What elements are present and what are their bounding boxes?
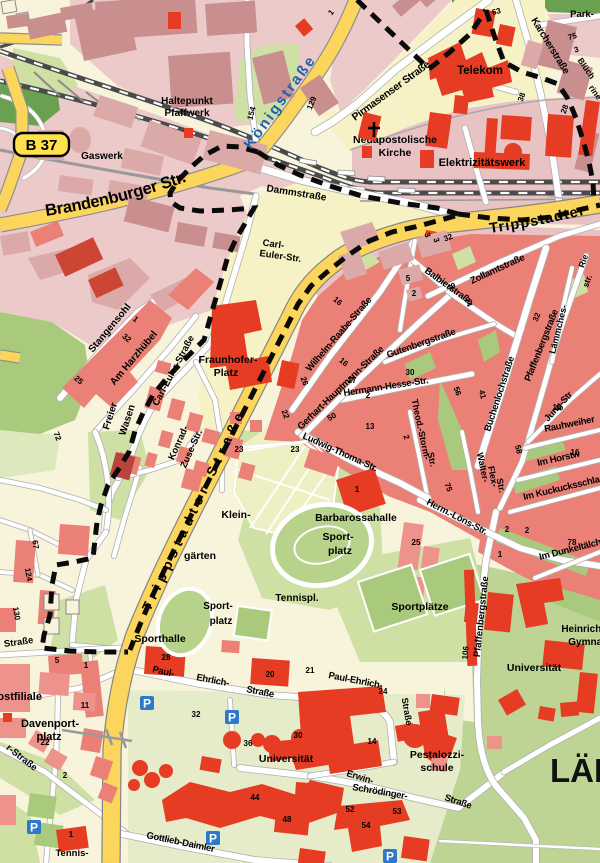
svg-text:24: 24 bbox=[379, 687, 388, 696]
svg-text:1: 1 bbox=[69, 830, 74, 839]
svg-text:schule: schule bbox=[420, 762, 453, 774]
svg-text:Elektrizitätswerk: Elektrizitätswerk bbox=[439, 157, 527, 169]
svg-text:1: 1 bbox=[84, 661, 89, 670]
svg-text:5: 5 bbox=[55, 656, 60, 665]
svg-text:Tennis-: Tennis- bbox=[55, 848, 88, 859]
svg-text:106: 106 bbox=[460, 645, 470, 660]
svg-text:Sport-: Sport- bbox=[323, 531, 354, 543]
svg-text:P: P bbox=[228, 711, 236, 725]
svg-text:P: P bbox=[143, 697, 151, 711]
svg-text:18: 18 bbox=[553, 403, 562, 412]
svg-text:16: 16 bbox=[571, 448, 580, 457]
svg-text:Barbarossahalle: Barbarossahalle bbox=[315, 512, 397, 524]
svg-text:22: 22 bbox=[41, 738, 50, 747]
svg-text:P: P bbox=[386, 850, 394, 863]
svg-text:Gymnas: Gymnas bbox=[568, 637, 600, 648]
svg-text:Sport-: Sport- bbox=[203, 601, 232, 612]
svg-text:2: 2 bbox=[505, 525, 510, 534]
svg-text:53: 53 bbox=[393, 807, 402, 816]
svg-text:25: 25 bbox=[412, 538, 421, 547]
svg-text:Pestalozzi-: Pestalozzi- bbox=[410, 749, 465, 761]
svg-text:30: 30 bbox=[406, 368, 415, 377]
svg-text:platz: platz bbox=[210, 616, 233, 627]
svg-text:48: 48 bbox=[283, 815, 292, 824]
svg-text:B 37: B 37 bbox=[26, 137, 58, 154]
svg-text:2: 2 bbox=[412, 289, 417, 298]
svg-text:54: 54 bbox=[362, 821, 371, 830]
svg-text:21: 21 bbox=[306, 666, 315, 675]
svg-text:Park-: Park- bbox=[570, 9, 594, 20]
svg-text:28: 28 bbox=[162, 653, 171, 662]
svg-text:23: 23 bbox=[291, 445, 300, 454]
svg-text:1: 1 bbox=[355, 485, 360, 494]
svg-text:Heinrich-: Heinrich- bbox=[561, 624, 600, 635]
svg-text:32: 32 bbox=[192, 710, 201, 719]
svg-text:Pfaffwerk: Pfaffwerk bbox=[164, 108, 209, 119]
svg-text:36: 36 bbox=[244, 739, 253, 748]
svg-text:Sportplätze: Sportplätze bbox=[391, 601, 448, 613]
svg-text:Davenport-: Davenport- bbox=[21, 718, 79, 730]
svg-text:2: 2 bbox=[63, 771, 68, 780]
svg-text:Telekom: Telekom bbox=[457, 65, 503, 77]
svg-text:23: 23 bbox=[235, 445, 244, 454]
svg-text:5: 5 bbox=[406, 274, 411, 283]
svg-text:78: 78 bbox=[568, 538, 577, 547]
svg-text:1: 1 bbox=[498, 550, 503, 559]
svg-text:17: 17 bbox=[348, 376, 357, 385]
svg-text:Klein-: Klein- bbox=[221, 509, 251, 521]
svg-text:Sporthalle: Sporthalle bbox=[134, 633, 186, 645]
svg-text:Universität: Universität bbox=[259, 753, 314, 765]
svg-text:2: 2 bbox=[525, 526, 530, 535]
svg-text:2: 2 bbox=[366, 391, 371, 400]
svg-text:Kirche: Kirche bbox=[379, 147, 412, 159]
svg-text:Fraunhofer-: Fraunhofer- bbox=[199, 354, 258, 366]
svg-text:platz: platz bbox=[328, 545, 352, 557]
svg-text:P: P bbox=[30, 821, 38, 835]
svg-text:Platz: Platz bbox=[214, 367, 239, 379]
svg-text:14: 14 bbox=[368, 737, 377, 746]
svg-text:Tennispl.: Tennispl. bbox=[275, 593, 318, 604]
svg-text:gärten: gärten bbox=[184, 550, 216, 562]
svg-text:Haltepunkt: Haltepunkt bbox=[161, 96, 213, 107]
svg-text:11: 11 bbox=[81, 701, 90, 710]
svg-text:Gaswerk: Gaswerk bbox=[81, 151, 123, 162]
svg-text:30: 30 bbox=[294, 731, 303, 740]
svg-text:20: 20 bbox=[266, 670, 275, 679]
svg-text:LÄMM: LÄMM bbox=[550, 752, 600, 789]
svg-text:44: 44 bbox=[251, 793, 260, 802]
svg-text:52: 52 bbox=[346, 805, 355, 814]
svg-text:13: 13 bbox=[366, 422, 375, 431]
svg-text:Universität: Universität bbox=[507, 662, 562, 674]
svg-text:Postfiliale: Postfiliale bbox=[0, 691, 42, 703]
